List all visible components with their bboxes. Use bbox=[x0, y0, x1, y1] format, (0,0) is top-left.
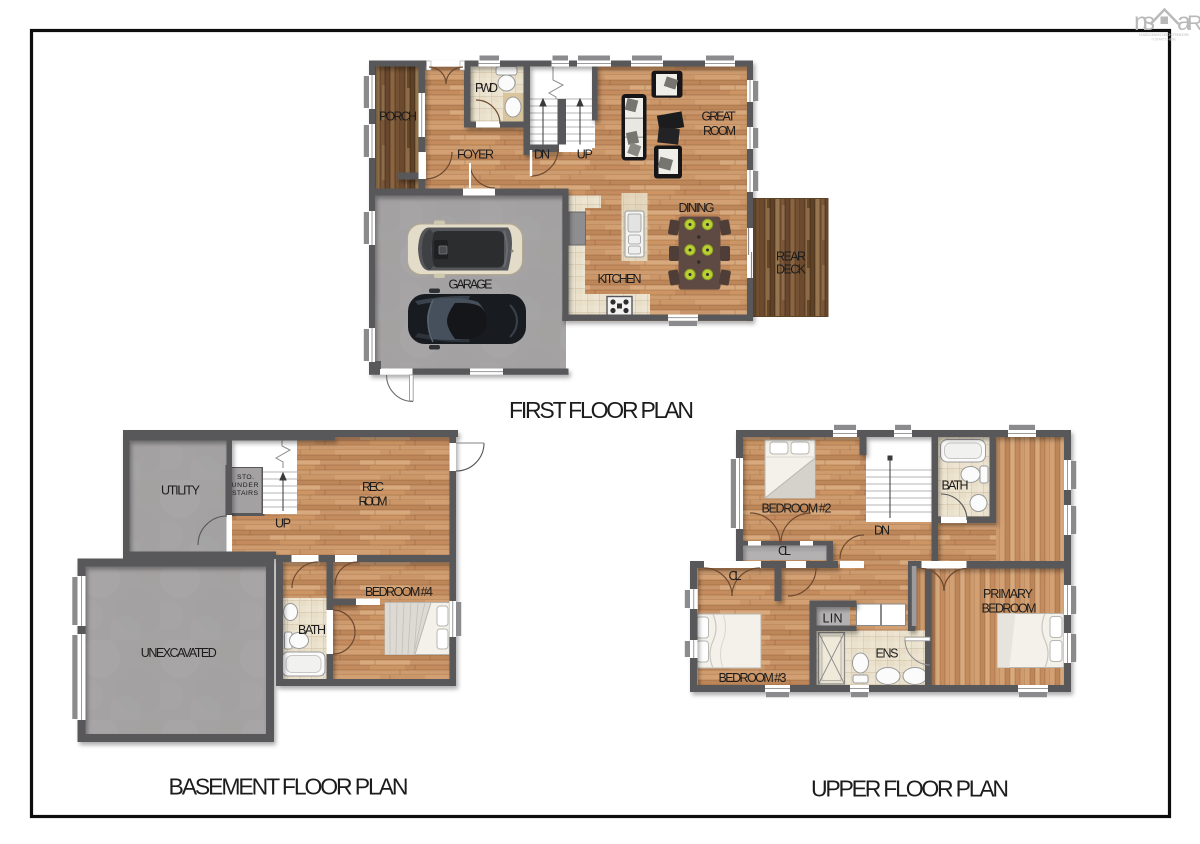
svg-text:BASEMENT FLOOR PLAN: BASEMENT FLOOR PLAN bbox=[169, 774, 409, 800]
svg-text:R: R bbox=[1187, 11, 1200, 35]
svg-text:BATH: BATH bbox=[942, 479, 969, 493]
svg-text:FOYER: FOYER bbox=[457, 148, 494, 162]
svg-text:UNEXCAVATED: UNEXCAVATED bbox=[141, 646, 217, 660]
svg-text:STAIRS: STAIRS bbox=[232, 490, 258, 497]
svg-text:STO.: STO. bbox=[237, 474, 254, 481]
svg-text:NOVA SCOTIA ASSOCIATION OF REA: NOVA SCOTIA ASSOCIATION OF REALTORS bbox=[1139, 33, 1190, 37]
svg-text:PWD: PWD bbox=[475, 81, 498, 95]
svg-text:DN: DN bbox=[534, 148, 550, 162]
svg-text:BEDROOM: BEDROOM bbox=[982, 602, 1037, 616]
svg-text:UPPER FLOOR PLAN: UPPER FLOOR PLAN bbox=[811, 776, 1009, 802]
svg-text:DECK: DECK bbox=[776, 263, 807, 277]
svg-text:FIRST FLOOR PLAN: FIRST FLOOR PLAN bbox=[509, 397, 694, 423]
svg-text:UNDER: UNDER bbox=[232, 482, 259, 489]
svg-text:PRIMARY: PRIMARY bbox=[983, 587, 1034, 601]
svg-text:KITCHEN: KITCHEN bbox=[598, 272, 642, 286]
svg-text:REC: REC bbox=[362, 480, 384, 494]
svg-text:ENS: ENS bbox=[876, 647, 899, 661]
svg-text:BEDROOM #2: BEDROOM #2 bbox=[762, 502, 832, 516]
svg-text:UP: UP bbox=[275, 517, 291, 531]
svg-text:GREAT: GREAT bbox=[702, 110, 736, 124]
svg-text:REAR: REAR bbox=[776, 250, 806, 264]
svg-text:DN: DN bbox=[874, 524, 890, 538]
svg-text:ROOM: ROOM bbox=[359, 495, 388, 509]
svg-text:LIN: LIN bbox=[823, 612, 843, 626]
svg-text:UTILITY: UTILITY bbox=[161, 484, 201, 498]
svg-text:BEDROOM #3: BEDROOM #3 bbox=[719, 671, 787, 685]
svg-text:DINING: DINING bbox=[679, 201, 715, 215]
svg-text:BATH: BATH bbox=[298, 623, 326, 637]
svg-text:IT STARTS HERE: IT STARTS HERE bbox=[1152, 38, 1178, 42]
svg-text:CL: CL bbox=[729, 569, 742, 583]
svg-text:GARAGE: GARAGE bbox=[449, 278, 493, 292]
svg-text:UP: UP bbox=[577, 148, 593, 162]
svg-text:CL: CL bbox=[778, 544, 791, 558]
svg-text:PORCH: PORCH bbox=[379, 110, 417, 124]
svg-text:ROOM: ROOM bbox=[703, 124, 736, 138]
svg-text:BEDROOM #4: BEDROOM #4 bbox=[365, 585, 433, 599]
